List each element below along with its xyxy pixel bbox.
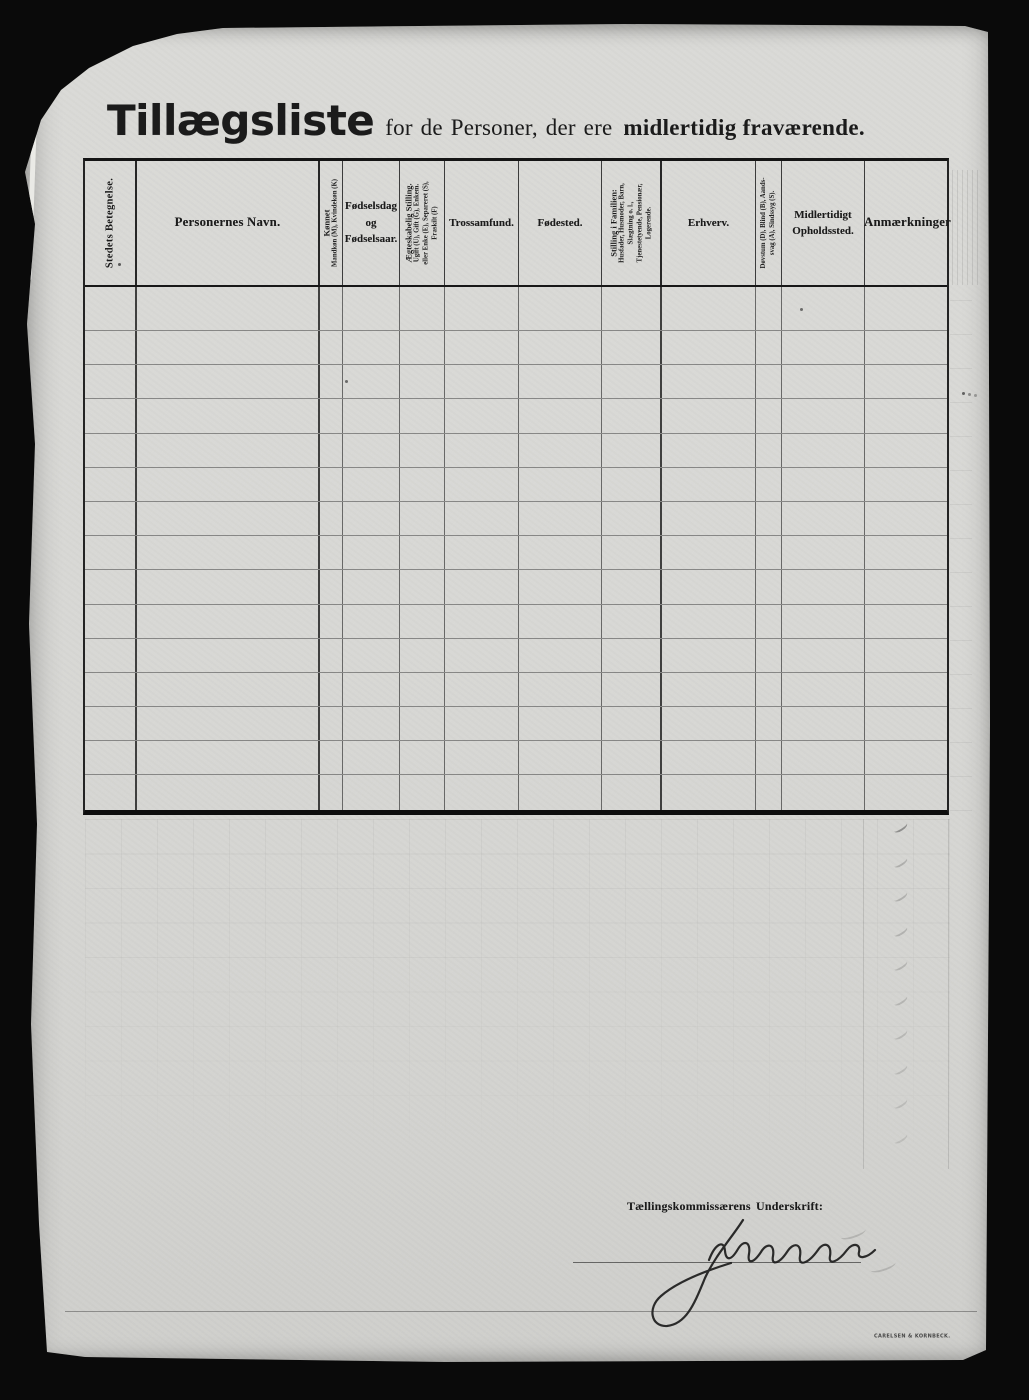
table-row xyxy=(85,365,947,399)
cell-trossamfund xyxy=(445,365,519,398)
column-header-erhverv: Erhverv. xyxy=(662,161,756,285)
cell-foedested xyxy=(519,741,602,774)
column-header-foedested: Fødested. xyxy=(519,161,602,285)
bleedthrough-grid xyxy=(85,819,950,1154)
cell-stedets-betegnelse xyxy=(85,707,137,740)
bleedthrough-mark xyxy=(892,924,908,938)
cell-stilling-i-familien xyxy=(602,468,662,501)
cell-erhverv xyxy=(662,536,756,569)
cell-personernes-navn xyxy=(137,365,320,398)
cell-stilling-i-familien xyxy=(602,287,662,330)
cell-stilling-i-familien xyxy=(602,673,662,706)
cell-koennet xyxy=(320,639,343,672)
cell-erhverv xyxy=(662,775,756,809)
cell-trossamfund xyxy=(445,287,519,330)
cell-doevstum-blind-aandssvag-sindssyg xyxy=(756,399,782,432)
column-header-foedselsdag-og-foedselsaar: FødselsdagogFødselsaar. xyxy=(343,161,400,285)
cell-stedets-betegnelse xyxy=(85,639,137,672)
cell-stilling-i-familien xyxy=(602,365,662,398)
cell-doevstum-blind-aandssvag-sindssyg xyxy=(756,331,782,364)
cell-aegteskabelig-stilling xyxy=(400,707,445,740)
column-header-aegteskabelig-stilling: Ægteskabelig Stilling.Ugift (U), Gift (G… xyxy=(400,161,445,285)
bleedthrough-mark xyxy=(892,855,908,869)
cell-anmaerkninger xyxy=(865,673,947,706)
cell-midlertidigt-opholdssted xyxy=(782,741,865,774)
cell-foedselsdag-og-foedselsaar xyxy=(343,570,400,603)
cell-koennet xyxy=(320,468,343,501)
cell-foedested xyxy=(519,468,602,501)
bottom-fold-line xyxy=(65,1311,977,1312)
cell-trossamfund xyxy=(445,639,519,672)
table-row xyxy=(85,570,947,604)
cell-aegteskabelig-stilling xyxy=(400,434,445,467)
cell-midlertidigt-opholdssted xyxy=(782,434,865,467)
cell-stedets-betegnelse xyxy=(85,570,137,603)
cell-trossamfund xyxy=(445,502,519,535)
table-row xyxy=(85,399,947,433)
cell-trossamfund xyxy=(445,775,519,809)
ink-speck xyxy=(345,380,348,383)
cell-aegteskabelig-stilling xyxy=(400,399,445,432)
cell-personernes-navn xyxy=(137,570,320,603)
cell-foedselsdag-og-foedselsaar xyxy=(343,775,400,809)
cell-koennet xyxy=(320,502,343,535)
cell-koennet xyxy=(320,741,343,774)
bleedthrough-mark xyxy=(892,1097,908,1111)
cell-stilling-i-familien xyxy=(602,775,662,809)
cell-erhverv xyxy=(662,434,756,467)
cell-personernes-navn xyxy=(137,673,320,706)
table-row xyxy=(85,775,947,809)
cell-anmaerkninger xyxy=(865,434,947,467)
cell-midlertidigt-opholdssted xyxy=(782,639,865,672)
cell-doevstum-blind-aandssvag-sindssyg xyxy=(756,365,782,398)
column-header-doevstum-blind-aandssvag-sindssyg: Døvstum (D), Blind (B), Aands-svag (A), … xyxy=(756,161,782,285)
cell-stilling-i-familien xyxy=(602,502,662,535)
bleedthrough-mark xyxy=(892,1131,908,1145)
cell-aegteskabelig-stilling xyxy=(400,775,445,809)
cell-foedselsdag-og-foedselsaar xyxy=(343,707,400,740)
cell-anmaerkninger xyxy=(865,365,947,398)
cell-koennet xyxy=(320,399,343,432)
column-header-stedets-betegnelse: Stedets Betegnelse. xyxy=(85,161,137,285)
cell-aegteskabelig-stilling xyxy=(400,639,445,672)
cell-anmaerkninger xyxy=(865,502,947,535)
cell-foedselsdag-og-foedselsaar xyxy=(343,502,400,535)
cell-midlertidigt-opholdssted xyxy=(782,502,865,535)
cell-personernes-navn xyxy=(137,639,320,672)
cell-trossamfund xyxy=(445,673,519,706)
cell-erhverv xyxy=(662,673,756,706)
cell-stedets-betegnelse xyxy=(85,468,137,501)
scanned-census-form: Tillægsliste for de Personer, der ere mi… xyxy=(0,0,1029,1400)
table-body xyxy=(85,287,947,810)
cell-koennet xyxy=(320,707,343,740)
census-table: Stedets Betegnelse.Personernes Navn.Kønn… xyxy=(83,158,949,815)
cell-koennet xyxy=(320,775,343,809)
cell-erhverv xyxy=(662,639,756,672)
bleedthrough-smudge xyxy=(950,300,972,820)
table-header: Stedets Betegnelse.Personernes Navn.Kønn… xyxy=(85,161,947,287)
table-row xyxy=(85,287,947,331)
cell-midlertidigt-opholdssted xyxy=(782,365,865,398)
cell-foedselsdag-og-foedselsaar xyxy=(343,287,400,330)
cell-stedets-betegnelse xyxy=(85,605,137,638)
cell-foedested xyxy=(519,287,602,330)
cell-stilling-i-familien xyxy=(602,570,662,603)
cell-foedested xyxy=(519,331,602,364)
cell-stedets-betegnelse xyxy=(85,365,137,398)
cell-koennet xyxy=(320,570,343,603)
column-header-koennet: KønnetMandkøn (M), Kvindekøn (K) xyxy=(320,161,343,285)
cell-foedselsdag-og-foedselsaar xyxy=(343,399,400,432)
cell-personernes-navn xyxy=(137,775,320,809)
column-header-midlertidigt-opholdssted: MidlertidigtOpholdssted. xyxy=(782,161,865,285)
cell-erhverv xyxy=(662,502,756,535)
cell-midlertidigt-opholdssted xyxy=(782,673,865,706)
cell-anmaerkninger xyxy=(865,707,947,740)
cell-personernes-navn xyxy=(137,399,320,432)
cell-midlertidigt-opholdssted xyxy=(782,331,865,364)
cell-doevstum-blind-aandssvag-sindssyg xyxy=(756,287,782,330)
cell-doevstum-blind-aandssvag-sindssyg xyxy=(756,536,782,569)
cell-foedested xyxy=(519,639,602,672)
cell-foedselsdag-og-foedselsaar xyxy=(343,365,400,398)
cell-personernes-navn xyxy=(137,434,320,467)
cell-aegteskabelig-stilling xyxy=(400,331,445,364)
cell-aegteskabelig-stilling xyxy=(400,605,445,638)
cell-doevstum-blind-aandssvag-sindssyg xyxy=(756,707,782,740)
table-row xyxy=(85,707,947,741)
cell-personernes-navn xyxy=(137,331,320,364)
cell-foedested xyxy=(519,605,602,638)
cell-trossamfund xyxy=(445,468,519,501)
cell-stedets-betegnelse xyxy=(85,502,137,535)
cell-doevstum-blind-aandssvag-sindssyg xyxy=(756,570,782,603)
cell-foedselsdag-og-foedselsaar xyxy=(343,331,400,364)
cell-personernes-navn xyxy=(137,707,320,740)
cell-aegteskabelig-stilling xyxy=(400,468,445,501)
bleedthrough-mark xyxy=(892,993,908,1007)
printer-mark: CARELSEN & KORNBECK. xyxy=(874,1333,951,1339)
cell-trossamfund xyxy=(445,605,519,638)
cell-doevstum-blind-aandssvag-sindssyg xyxy=(756,639,782,672)
table-row xyxy=(85,331,947,365)
cell-trossamfund xyxy=(445,399,519,432)
cell-foedselsdag-og-foedselsaar xyxy=(343,639,400,672)
bleedthrough-smudge xyxy=(952,170,978,285)
cell-midlertidigt-opholdssted xyxy=(782,287,865,330)
cell-stilling-i-familien xyxy=(602,331,662,364)
column-header-trossamfund: Trossamfund. xyxy=(445,161,519,285)
cell-doevstum-blind-aandssvag-sindssyg xyxy=(756,775,782,809)
cell-midlertidigt-opholdssted xyxy=(782,399,865,432)
cell-foedselsdag-og-foedselsaar xyxy=(343,605,400,638)
cell-stedets-betegnelse xyxy=(85,536,137,569)
cell-midlertidigt-opholdssted xyxy=(782,707,865,740)
cell-doevstum-blind-aandssvag-sindssyg xyxy=(756,434,782,467)
cell-koennet xyxy=(320,287,343,330)
table-row xyxy=(85,468,947,502)
cell-stedets-betegnelse xyxy=(85,331,137,364)
cell-erhverv xyxy=(662,605,756,638)
cell-foedselsdag-og-foedselsaar xyxy=(343,673,400,706)
bleedthrough-mark xyxy=(892,959,908,973)
cell-stilling-i-familien xyxy=(602,639,662,672)
cell-trossamfund xyxy=(445,741,519,774)
cell-doevstum-blind-aandssvag-sindssyg xyxy=(756,468,782,501)
cell-stilling-i-familien xyxy=(602,707,662,740)
cell-foedselsdag-og-foedselsaar xyxy=(343,434,400,467)
ink-speck xyxy=(962,392,965,395)
cell-foedested xyxy=(519,434,602,467)
cell-anmaerkninger xyxy=(865,468,947,501)
cell-midlertidigt-opholdssted xyxy=(782,468,865,501)
cell-anmaerkninger xyxy=(865,741,947,774)
cell-trossamfund xyxy=(445,434,519,467)
cell-aegteskabelig-stilling xyxy=(400,673,445,706)
cell-stedets-betegnelse xyxy=(85,287,137,330)
cell-stedets-betegnelse xyxy=(85,399,137,432)
cell-anmaerkninger xyxy=(865,605,947,638)
cell-anmaerkninger xyxy=(865,639,947,672)
table-row xyxy=(85,502,947,536)
cell-aegteskabelig-stilling xyxy=(400,287,445,330)
cell-personernes-navn xyxy=(137,605,320,638)
cell-stilling-i-familien xyxy=(602,536,662,569)
bleedthrough-mark xyxy=(892,890,908,904)
cell-erhverv xyxy=(662,399,756,432)
cell-aegteskabelig-stilling xyxy=(400,741,445,774)
bleedthrough-line xyxy=(863,819,864,1169)
cell-koennet xyxy=(320,331,343,364)
cell-foedselsdag-og-foedselsaar xyxy=(343,468,400,501)
cell-erhverv xyxy=(662,741,756,774)
cell-foedselsdag-og-foedselsaar xyxy=(343,741,400,774)
cell-anmaerkninger xyxy=(865,399,947,432)
table-row xyxy=(85,536,947,570)
bleedthrough-mark xyxy=(892,1062,908,1076)
cell-stedets-betegnelse xyxy=(85,434,137,467)
cell-stedets-betegnelse xyxy=(85,673,137,706)
cell-foedested xyxy=(519,775,602,809)
cell-doevstum-blind-aandssvag-sindssyg xyxy=(756,502,782,535)
cell-foedested xyxy=(519,502,602,535)
cell-erhverv xyxy=(662,287,756,330)
paper-sheet: Tillægsliste for de Personer, der ere mi… xyxy=(25,24,990,1362)
cell-trossamfund xyxy=(445,570,519,603)
cell-anmaerkninger xyxy=(865,536,947,569)
cell-stedets-betegnelse xyxy=(85,775,137,809)
cell-anmaerkninger xyxy=(865,570,947,603)
cell-stilling-i-familien xyxy=(602,434,662,467)
form-title-main: Tillægsliste xyxy=(107,96,374,145)
cell-midlertidigt-opholdssted xyxy=(782,605,865,638)
cell-doevstum-blind-aandssvag-sindssyg xyxy=(756,741,782,774)
cell-stilling-i-familien xyxy=(602,399,662,432)
cell-erhverv xyxy=(662,468,756,501)
cell-midlertidigt-opholdssted xyxy=(782,775,865,809)
cell-erhverv xyxy=(662,707,756,740)
paper-torn-edge xyxy=(26,66,39,281)
table-row xyxy=(85,741,947,775)
cell-foedested xyxy=(519,365,602,398)
cell-personernes-navn xyxy=(137,536,320,569)
cell-personernes-navn xyxy=(137,287,320,330)
cell-foedested xyxy=(519,673,602,706)
cell-koennet xyxy=(320,673,343,706)
cell-koennet xyxy=(320,536,343,569)
form-title: Tillægsliste for de Personer, der ere mi… xyxy=(107,96,865,145)
table-row xyxy=(85,639,947,673)
cell-stilling-i-familien xyxy=(602,605,662,638)
cell-koennet xyxy=(320,434,343,467)
cell-trossamfund xyxy=(445,707,519,740)
cell-stedets-betegnelse xyxy=(85,741,137,774)
bleedthrough-marks xyxy=(893,824,923,1184)
bleedthrough-line xyxy=(948,819,949,1169)
ink-speck xyxy=(800,308,803,311)
bleedthrough-mark xyxy=(892,1028,908,1042)
cell-aegteskabelig-stilling xyxy=(400,365,445,398)
cell-stilling-i-familien xyxy=(602,741,662,774)
cell-midlertidigt-opholdssted xyxy=(782,570,865,603)
form-title-connector: for de Personer, der ere xyxy=(385,115,612,141)
cell-erhverv xyxy=(662,570,756,603)
cell-personernes-navn xyxy=(137,468,320,501)
cell-foedested xyxy=(519,570,602,603)
cell-anmaerkninger xyxy=(865,331,947,364)
cell-foedested xyxy=(519,707,602,740)
table-row xyxy=(85,605,947,639)
cell-doevstum-blind-aandssvag-sindssyg xyxy=(756,605,782,638)
cell-foedested xyxy=(519,536,602,569)
cell-erhverv xyxy=(662,365,756,398)
table-row xyxy=(85,434,947,468)
cell-personernes-navn xyxy=(137,502,320,535)
cell-aegteskabelig-stilling xyxy=(400,502,445,535)
cell-trossamfund xyxy=(445,331,519,364)
cell-anmaerkninger xyxy=(865,775,947,809)
form-title-emphasis: midlertidig fraværende. xyxy=(623,115,865,141)
commissioner-signature xyxy=(591,1208,901,1336)
cell-foedested xyxy=(519,399,602,432)
column-header-stilling-i-familien: Stilling i Familien:Husfader, Husmoder, … xyxy=(602,161,662,285)
cell-koennet xyxy=(320,365,343,398)
cell-aegteskabelig-stilling xyxy=(400,536,445,569)
cell-erhverv xyxy=(662,331,756,364)
cell-foedselsdag-og-foedselsaar xyxy=(343,536,400,569)
cell-doevstum-blind-aandssvag-sindssyg xyxy=(756,673,782,706)
cell-personernes-navn xyxy=(137,741,320,774)
cell-aegteskabelig-stilling xyxy=(400,570,445,603)
column-header-anmaerkninger: Anmærkninger xyxy=(865,161,950,285)
column-header-personernes-navn: Personernes Navn. xyxy=(137,161,320,285)
cell-koennet xyxy=(320,605,343,638)
cell-midlertidigt-opholdssted xyxy=(782,536,865,569)
cell-anmaerkninger xyxy=(865,287,947,330)
cell-trossamfund xyxy=(445,536,519,569)
table-row xyxy=(85,673,947,707)
ink-speck xyxy=(118,263,121,266)
